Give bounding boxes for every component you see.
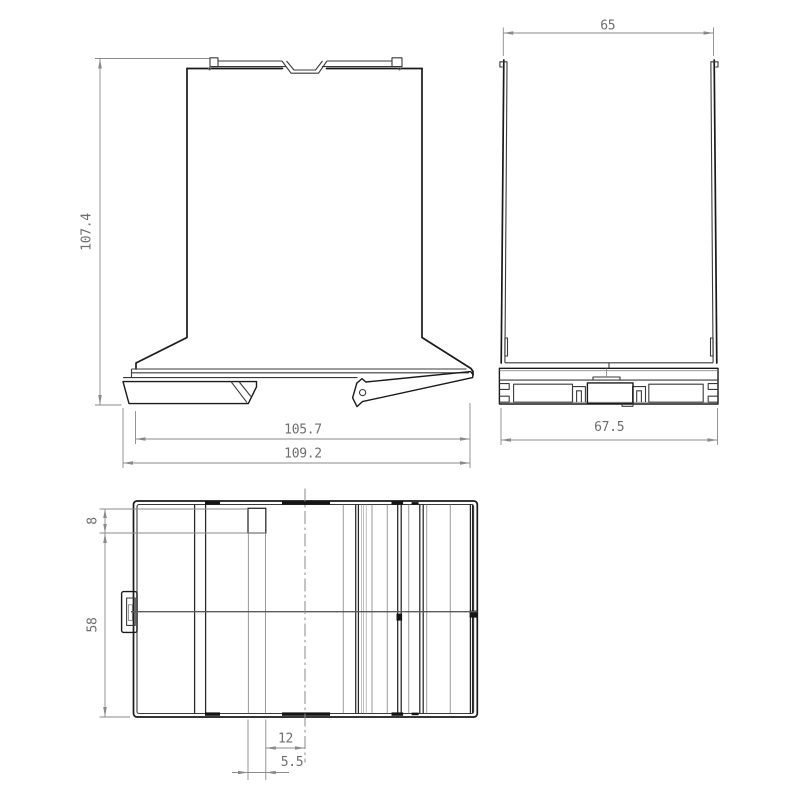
arrowhead-left xyxy=(503,31,513,35)
front-dim-height: 107.4 xyxy=(80,59,210,406)
top-dim-slot-depth: 8 xyxy=(86,509,266,533)
front-latch-block xyxy=(123,382,257,404)
top-part xyxy=(122,489,478,763)
top-seam-edges xyxy=(356,505,473,714)
top-gasket-segment xyxy=(392,712,404,715)
top-surface-edges xyxy=(343,505,450,714)
front-body-right-side xyxy=(422,69,473,376)
arrowhead-up xyxy=(98,59,102,69)
ext-line xyxy=(100,533,131,717)
side-right-wall-tab xyxy=(711,338,714,356)
side-right-wall xyxy=(714,60,717,363)
side-left-wall xyxy=(501,60,504,363)
dim-label-overall-width: 109.2 xyxy=(284,447,322,462)
side-base-center-block xyxy=(587,383,633,404)
front-lever-pivot-hole xyxy=(360,390,366,396)
dim-label-slot-depth: 8 xyxy=(86,517,101,525)
top-fine-edges xyxy=(361,505,366,714)
top-gasket-segment xyxy=(392,501,404,504)
arrowhead-right xyxy=(295,746,305,750)
front-left-clip xyxy=(210,58,218,67)
arrowhead-left xyxy=(266,746,276,750)
top-view: 8 58 12 5.5 xyxy=(86,489,478,781)
top-gasket-segment xyxy=(205,712,220,715)
top-mid-latch-left xyxy=(397,614,403,621)
dim-label-slot-to-center: 12 xyxy=(278,732,293,747)
ext-line xyxy=(248,720,305,781)
arrowhead-right xyxy=(460,437,470,441)
side-base-outline xyxy=(499,368,718,404)
front-recess-outer xyxy=(282,61,327,73)
ext-line xyxy=(95,59,210,406)
drawing-canvas: 107.4 105.7 109.2 xyxy=(0,0,800,800)
arrowhead-right xyxy=(708,438,718,442)
top-gasket-segment xyxy=(412,502,419,505)
technical-drawing: 107.4 105.7 109.2 xyxy=(0,0,800,800)
top-dim-slot-to-center: 12 xyxy=(248,720,305,781)
top-gasket-segment xyxy=(282,501,330,504)
side-dim-top-width: 65 xyxy=(503,19,713,57)
top-dim-slot-width: 5.5 xyxy=(232,755,303,774)
front-view: 107.4 105.7 109.2 xyxy=(80,58,474,468)
top-dim-body-depth: 58 xyxy=(86,533,131,717)
side-part xyxy=(499,60,718,406)
top-slot-section xyxy=(248,508,266,533)
arrowhead-left-in xyxy=(266,771,276,775)
front-dim-base-width: 105.7 xyxy=(136,411,471,444)
ext-line xyxy=(100,509,266,533)
arrowhead-right xyxy=(704,31,714,35)
side-left-wall-inner xyxy=(505,67,507,363)
side-base-left-channel xyxy=(573,387,586,403)
arrowhead-up xyxy=(103,509,107,518)
top-left-panel-band xyxy=(195,505,206,714)
arrowhead-left xyxy=(501,438,511,442)
dim-label-top-width: 65 xyxy=(600,19,615,34)
side-dim-base-width: 67.5 xyxy=(501,408,718,445)
front-recess-inner xyxy=(287,61,323,70)
top-gasket-segment xyxy=(282,712,330,715)
side-right-wall-inner xyxy=(711,67,713,363)
arrowhead-down xyxy=(98,395,102,405)
side-view: 65 67.5 xyxy=(499,19,718,446)
front-right-clip xyxy=(392,58,402,67)
arrowhead-right-in xyxy=(238,771,248,775)
arrowhead-down xyxy=(103,524,107,533)
dim-label-base-width: 67.5 xyxy=(594,420,624,435)
side-base-left-bracket xyxy=(499,384,509,403)
side-base-left-slot xyxy=(514,384,573,402)
arrowhead-left xyxy=(123,461,133,465)
arrowhead-down xyxy=(103,707,107,717)
arrowhead-right xyxy=(460,461,470,465)
dim-label-slot-width: 5.5 xyxy=(281,755,304,770)
arrowhead-left xyxy=(136,437,146,441)
front-lever xyxy=(353,372,473,407)
side-left-wall-tab xyxy=(505,338,508,356)
dim-label-body-depth: 58 xyxy=(86,617,101,632)
dim-label-height: 107.4 xyxy=(80,213,95,251)
arrowhead-up xyxy=(103,533,107,543)
front-latch-notch xyxy=(231,382,251,403)
dim-label-base-width: 105.7 xyxy=(284,423,322,438)
front-part xyxy=(123,58,473,407)
top-gasket-segment xyxy=(205,501,220,504)
side-base-right-bracket xyxy=(708,384,718,403)
top-slot-rails xyxy=(248,533,265,714)
side-base-right-channel xyxy=(633,387,646,403)
top-gasket-segment xyxy=(412,713,419,716)
side-base-right-slot xyxy=(649,384,703,402)
front-body-left-side xyxy=(136,69,187,370)
top-latch-tab-inner xyxy=(128,605,132,621)
